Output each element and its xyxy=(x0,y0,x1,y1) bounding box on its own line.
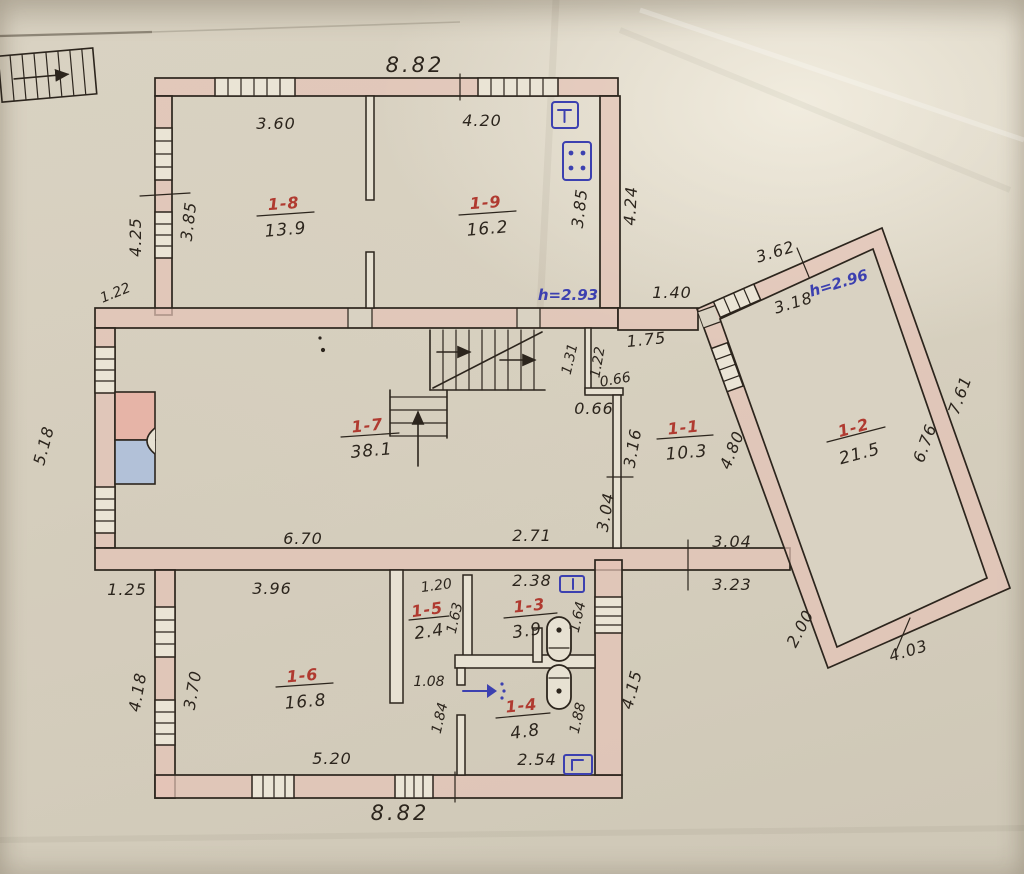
dim-bottom-total: 8.82 xyxy=(371,801,430,825)
toilet-r4 xyxy=(547,665,571,709)
wall-left-lower xyxy=(155,570,175,798)
room-area: 3.9 xyxy=(511,619,544,643)
partition-r8-r9-lower xyxy=(366,252,374,308)
partition-hall-left xyxy=(613,395,621,548)
room-area: 2.4 xyxy=(413,620,446,644)
room-area: 13.9 xyxy=(264,218,307,242)
window-bottom-2 xyxy=(395,775,433,798)
room-number: 1-9 xyxy=(469,192,502,213)
room-area: 10.3 xyxy=(665,441,708,465)
dim-right-outer: 4.24 xyxy=(620,185,641,226)
window-left-middle-1 xyxy=(95,347,115,393)
room-area: 16.8 xyxy=(284,690,327,714)
dim-left-jog: 1.22 xyxy=(98,280,133,307)
floor-plan-drawing: 1-8 13.9 1-9 16.2 1-7 38.1 1-1 10.3 1-2 … xyxy=(0,0,1024,874)
dim-r4-bottom: 2.54 xyxy=(517,750,557,769)
dim-left-middle: 5.18 xyxy=(29,424,58,467)
room-area: 38.1 xyxy=(350,439,393,463)
partition-r6-right xyxy=(390,570,403,703)
dim-bottom-left-outer: 4.18 xyxy=(125,671,151,713)
dim-r3-height: 1.64 xyxy=(567,600,590,634)
partition-r3-r4 xyxy=(455,655,595,668)
room-label-1-4: 1-4 4.8 xyxy=(496,694,550,744)
dim-nook-left: 1.31 xyxy=(559,342,582,376)
wall-right-upper xyxy=(600,96,620,308)
window-left-upper-1 xyxy=(155,128,172,180)
window-top-2 xyxy=(478,78,558,96)
room-number: 1-3 xyxy=(513,594,547,616)
dim-r9-width: 4.20 xyxy=(462,111,502,130)
room-label-1-1: 1-1 10.3 xyxy=(657,416,713,464)
height-note-main: h=2.93 xyxy=(538,286,598,304)
dim-nook-width-2: 0.66 xyxy=(574,399,614,418)
door-r7-upper-1 xyxy=(348,309,372,327)
floor-plan-sheet: 1-8 13.9 1-9 16.2 1-7 38.1 1-1 10.3 1-2 … xyxy=(0,0,1024,874)
dim-r9-height: 3.85 xyxy=(568,188,592,230)
dim-hall-bottom-1: 3.04 xyxy=(712,532,752,551)
dim-annex-top-outer: 3.62 xyxy=(754,237,797,267)
external-staircase xyxy=(0,48,97,102)
dim-r8-height: 3.85 xyxy=(177,201,201,243)
dim-annex-right-outer: 7.61 xyxy=(944,373,975,417)
dim-r5-width: 1.20 xyxy=(420,576,453,596)
dim-r6-height: 3.70 xyxy=(180,669,206,711)
boiler-icon-r3 xyxy=(560,576,584,592)
dim-hall-height-1: 3.16 xyxy=(620,427,646,469)
window-left-middle-2 xyxy=(95,487,115,533)
dim-annex-bottom-left: 2.00 xyxy=(782,606,817,650)
window-left-lower-1 xyxy=(155,607,175,657)
dim-r6-bottom: 5.20 xyxy=(312,749,352,768)
room-label-1-9: 1-9 16.2 xyxy=(459,192,516,241)
dim-top-total: 8.82 xyxy=(386,53,445,77)
dim-hall-gap: 1.40 xyxy=(652,283,692,302)
door-r7-upper-2 xyxy=(517,309,540,327)
wall-right-lower xyxy=(595,560,622,775)
wall-corridor-annex xyxy=(618,308,698,330)
dim-r3-width: 2.38 xyxy=(512,571,552,590)
partition-r8-r9-upper xyxy=(366,96,374,200)
dim-annex-bottom: 4.03 xyxy=(887,636,930,666)
dim-hall-bottom-2: 3.23 xyxy=(712,575,752,594)
dim-nook-top: 1.75 xyxy=(626,328,667,351)
window-left-lower-2 xyxy=(155,700,175,745)
room-number: 1-4 xyxy=(505,694,539,716)
fireplace xyxy=(115,392,155,484)
dim-left-outer: 4.25 xyxy=(126,217,145,257)
window-top-1 xyxy=(215,78,295,96)
room-area: 4.8 xyxy=(509,720,542,744)
room-label-1-8: 1-8 13.9 xyxy=(257,193,314,242)
wall-bottom xyxy=(155,775,622,798)
room-label-1-5: 1-5 2.4 xyxy=(409,598,449,644)
internal-staircase xyxy=(390,330,545,466)
room-label-1-6: 1-6 16.8 xyxy=(276,665,333,714)
wall-mid-lower-band xyxy=(95,548,790,570)
electric-switch-icon xyxy=(552,102,578,128)
window-right-lower xyxy=(595,597,622,633)
room-number: 1-1 xyxy=(667,416,701,438)
window-left-upper-2 xyxy=(155,212,172,258)
shower-icon xyxy=(463,682,506,699)
dim-r4-height: 1.88 xyxy=(567,701,590,735)
room-number: 1-8 xyxy=(267,193,300,214)
room-number: 1-6 xyxy=(286,665,319,687)
room-number: 1-7 xyxy=(351,414,385,436)
partition-corr-r4-lower xyxy=(457,715,465,775)
dim-r7-bottom-2: 2.71 xyxy=(512,526,552,545)
room-area: 16.2 xyxy=(466,217,509,241)
dim-r7-bottom-1: 6.70 xyxy=(283,529,323,548)
dim-bottom-left-jog: 1.25 xyxy=(107,580,147,599)
partition-corr-r4-upper xyxy=(457,668,465,685)
partition-r5-r3 xyxy=(463,575,472,662)
dim-r6-width: 3.96 xyxy=(252,579,292,598)
electric-stove-icon xyxy=(563,142,591,180)
window-bottom-1 xyxy=(252,775,294,798)
dim-corridor-height: 1.84 xyxy=(429,701,452,735)
dim-corridor-width: 1.08 xyxy=(413,674,444,690)
dim-annex-left: 4.80 xyxy=(716,428,748,472)
dim-r8-width: 3.60 xyxy=(256,114,296,133)
gas-meter-icon-r4 xyxy=(564,755,592,774)
